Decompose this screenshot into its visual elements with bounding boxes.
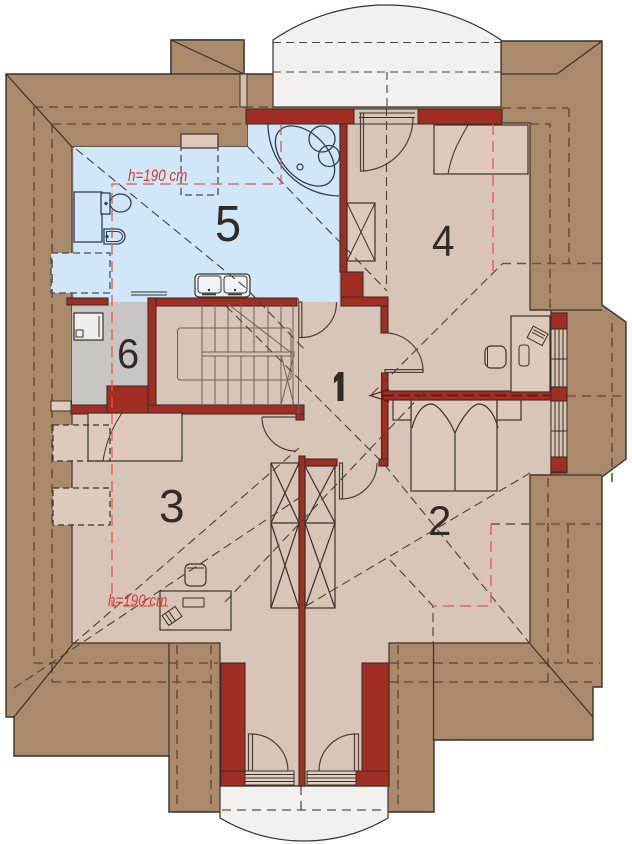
svg-text:6: 6 (117, 330, 139, 377)
svg-text:h=190 cm: h=190 cm (128, 167, 187, 186)
svg-text:5: 5 (215, 196, 241, 252)
svg-text:2: 2 (428, 497, 451, 544)
svg-text:4: 4 (432, 216, 455, 265)
svg-text:3: 3 (159, 480, 185, 532)
svg-text:h=190 cm: h=190 cm (108, 592, 167, 611)
